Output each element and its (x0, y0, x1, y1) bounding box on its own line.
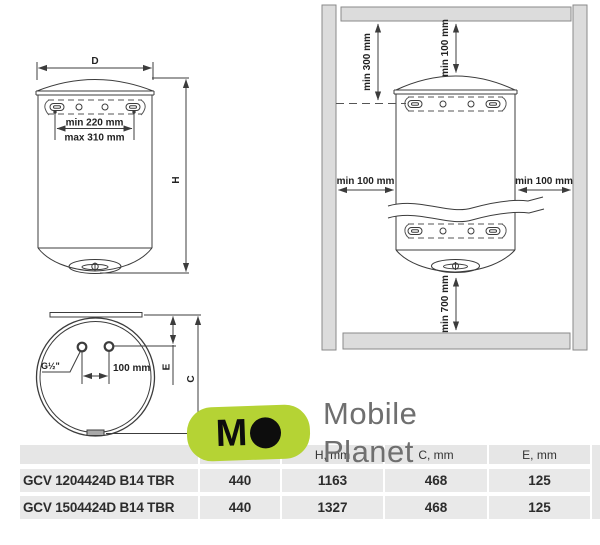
logo-letter-m: M (215, 414, 246, 453)
bottom-view-diagram: G½" 100 mm E C (37, 313, 202, 437)
col-header-model (20, 445, 198, 464)
pipe-connection-right (105, 342, 114, 351)
bottom-clearance-label: min 700 mm (440, 275, 451, 333)
cell-d: 440 (200, 469, 280, 492)
ceiling-to-top-label: min 100 mm (440, 19, 451, 77)
logo-dot-icon (250, 416, 282, 448)
right-wall (573, 5, 587, 350)
bottom-outlet (87, 430, 104, 436)
c-dim-label: C (186, 375, 197, 382)
model-name: GCV 1204424D B14 TBR (20, 469, 198, 492)
pipe-spacing-label: 100 mm (113, 363, 150, 374)
spec-table: D, mm H, mm C, mm E, mm GCV 1204424D B14… (20, 445, 590, 519)
watermark-line1: Mobile (323, 396, 417, 432)
wall-bracket-edge (50, 313, 142, 318)
ceiling-to-bracket-label: min 300 mm (362, 33, 373, 91)
front-view-diagram: D min 220 mm max 310 mm (36, 56, 189, 274)
cell-h: 1163 (282, 469, 383, 492)
cell-h: 1327 (282, 496, 383, 519)
floor (343, 333, 570, 349)
e-dim-label: E (162, 363, 173, 370)
front-h-label: H (171, 176, 182, 183)
cell-d: 440 (200, 496, 280, 519)
front-d-label: D (91, 56, 98, 67)
logo-mark: M (186, 404, 311, 462)
mounting-slots (50, 104, 140, 111)
thread-size-label: G½" (41, 361, 60, 371)
technical-diagrams: D min 220 mm max 310 mm (0, 0, 600, 443)
col-header-e: E, mm (489, 445, 590, 464)
spec-sheet: D min 220 mm max 310 mm (0, 0, 600, 545)
installation-diagram: min 300 mm min 100 mm min 100 mm min 100… (322, 5, 587, 350)
right-clearance-label: min 100 mm (515, 176, 573, 187)
front-max-spacing-label: max 310 mm (64, 133, 124, 144)
front-min-spacing-label: min 220 mm (66, 118, 124, 129)
left-clearance-label: min 100 mm (337, 176, 395, 187)
pipe-connection-left (78, 343, 87, 352)
cell-e: 125 (489, 469, 590, 492)
cell-c: 468 (385, 469, 487, 492)
model-name: GCV 1504424D B14 TBR (20, 496, 198, 519)
watermark-line2: Planet (323, 434, 414, 470)
cell-c: 468 (385, 496, 487, 519)
ceiling (341, 7, 571, 21)
left-wall (322, 5, 336, 350)
table-edge-sliver (592, 445, 600, 519)
cell-e: 125 (489, 496, 590, 519)
